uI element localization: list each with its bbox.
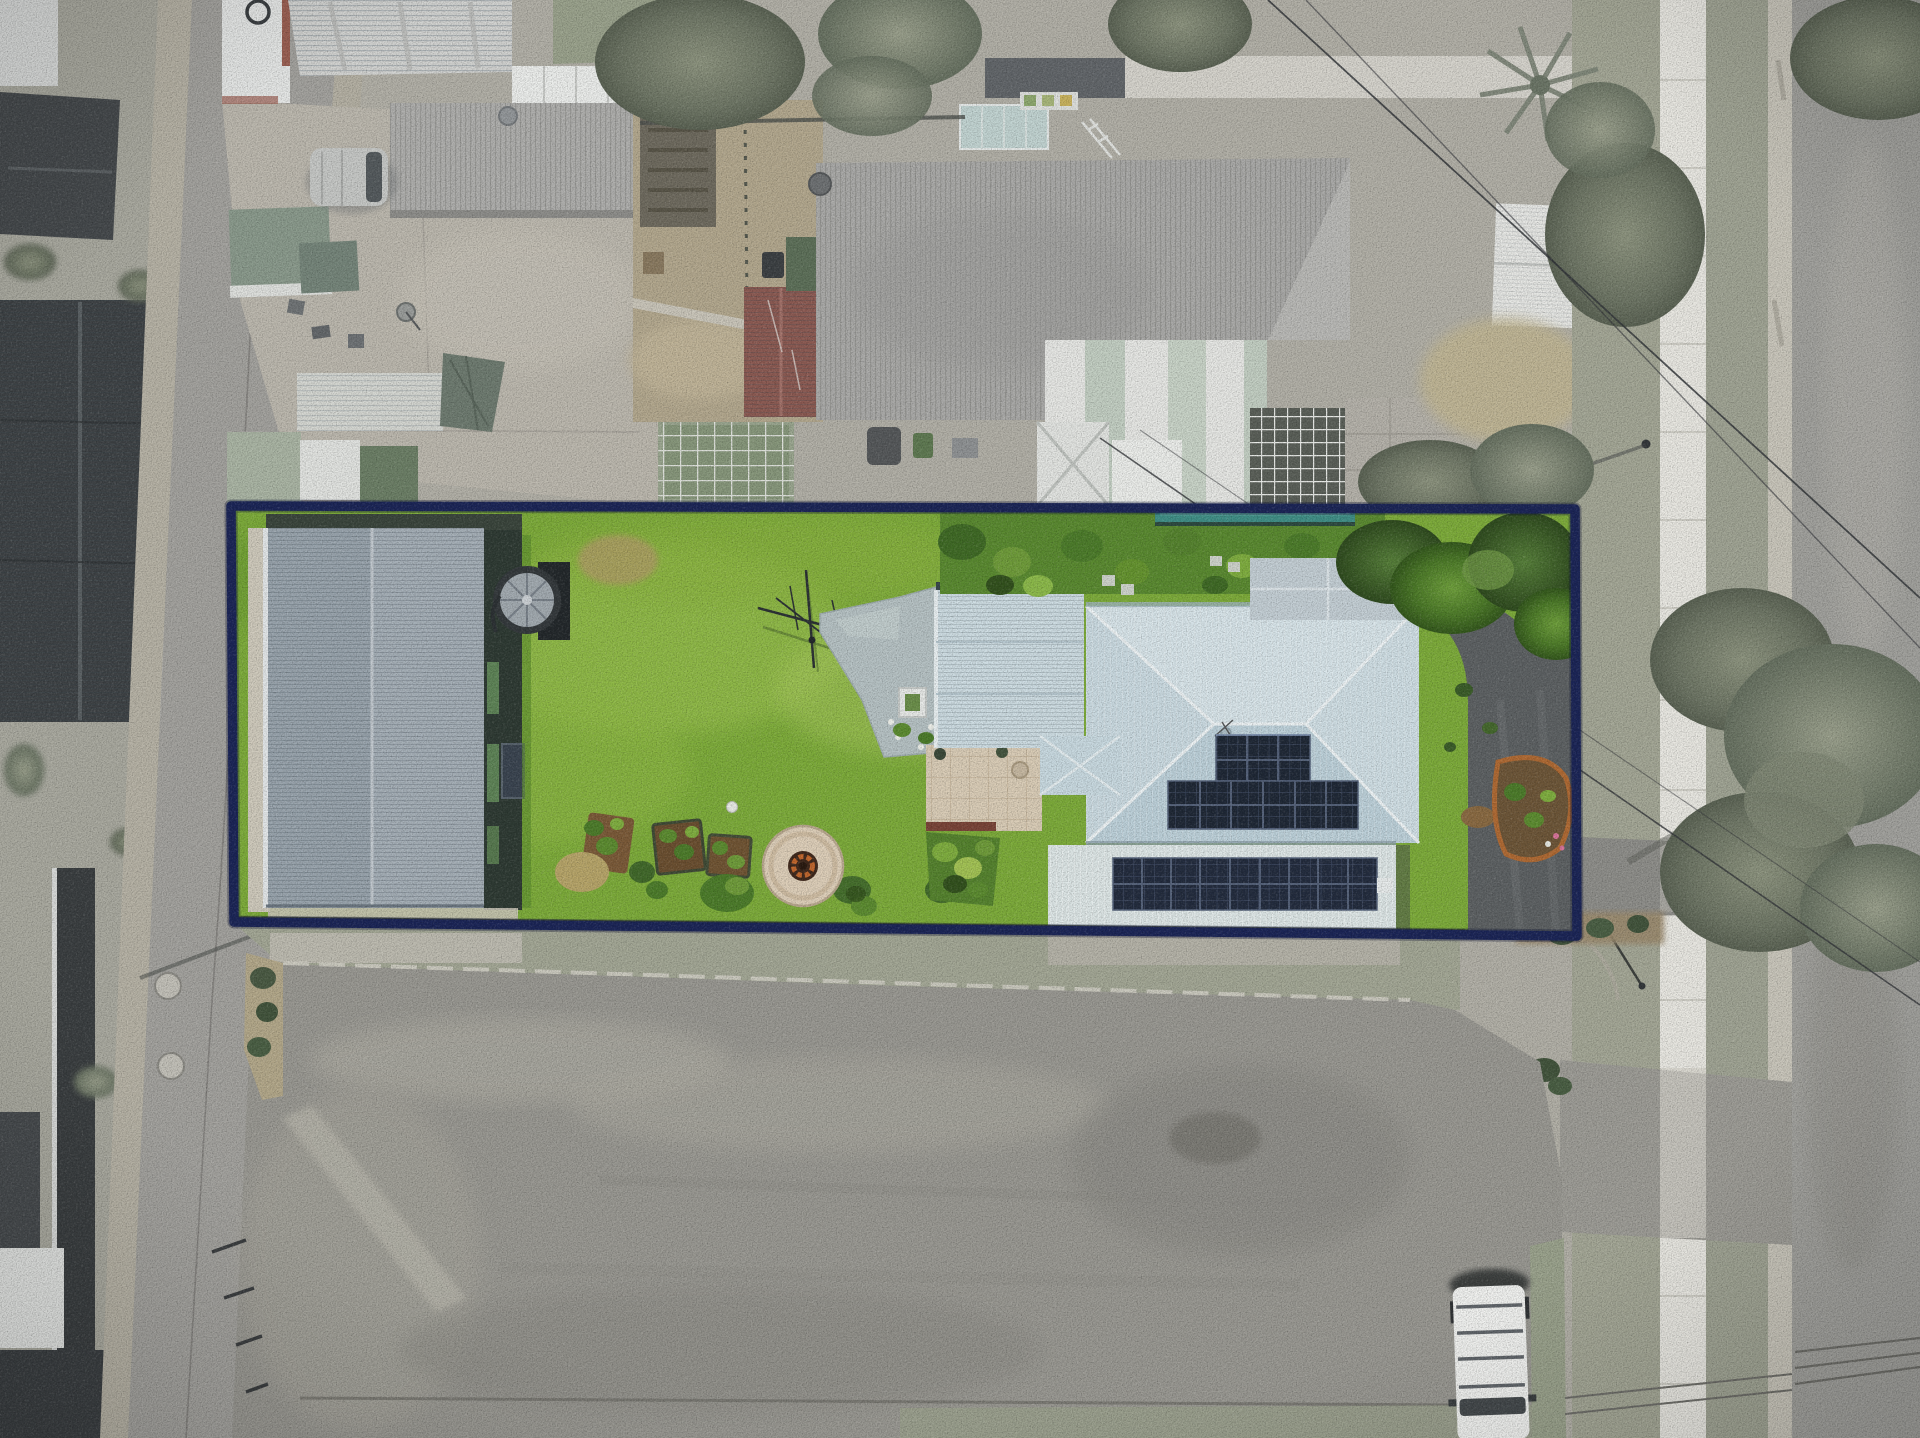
aerial-photo [0,0,1920,1438]
aerial-photo-canvas [0,0,1920,1438]
vignette [0,0,1920,1438]
